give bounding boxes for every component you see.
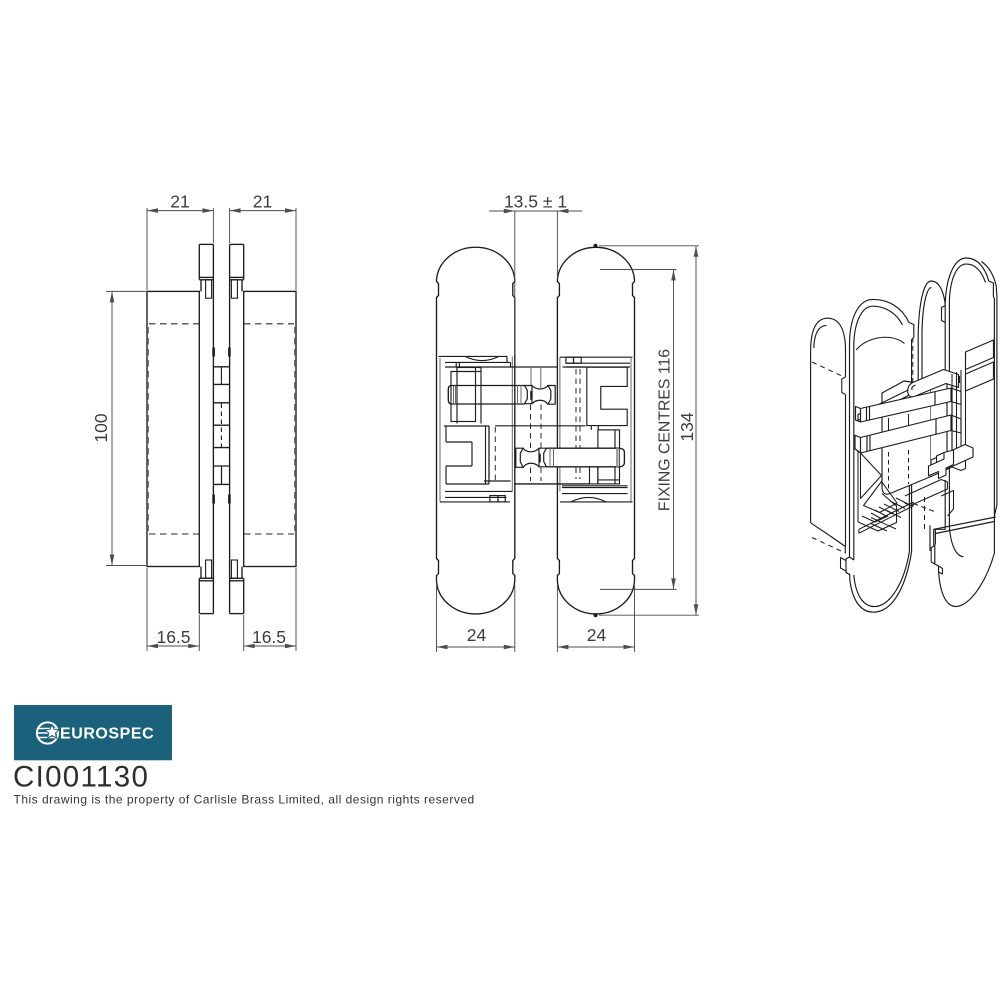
svg-text:FIXING CENTRES 116: FIXING CENTRES 116 <box>657 349 674 511</box>
svg-text:CI001130: CI001130 <box>13 761 149 794</box>
svg-text:16.5: 16.5 <box>252 627 286 647</box>
svg-text:24: 24 <box>467 625 487 645</box>
svg-text:21: 21 <box>253 192 272 212</box>
svg-text:16.5: 16.5 <box>156 627 190 647</box>
svg-text:13.5 ± 1: 13.5 ± 1 <box>504 192 567 212</box>
svg-text:This drawing is the property o: This drawing is the property of Carlisle… <box>14 793 475 807</box>
svg-text:21: 21 <box>170 192 189 212</box>
svg-text:24: 24 <box>587 625 607 645</box>
svg-text:EUROSPEC: EUROSPEC <box>60 726 154 743</box>
svg-text:100: 100 <box>91 413 111 442</box>
svg-text:134: 134 <box>677 412 697 441</box>
